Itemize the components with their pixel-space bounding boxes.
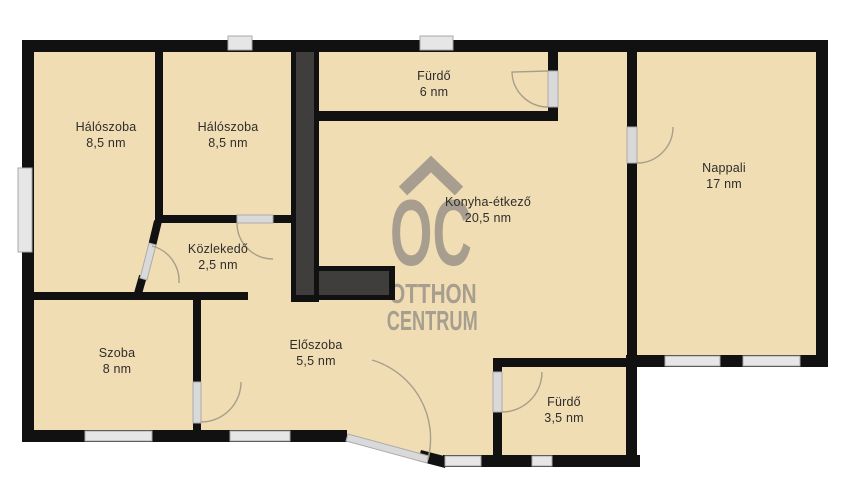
door-leaf-furdo1 xyxy=(548,71,558,107)
watermark-line2: CENTRUM xyxy=(387,306,478,337)
room-name: Hálószoba xyxy=(198,119,259,135)
door-leaf-furdo2 xyxy=(493,372,502,412)
room-area: 6 nm xyxy=(417,84,451,100)
wall-szoba-divider-upper xyxy=(193,300,201,382)
watermark-logo: OC OTTHON CENTRUM xyxy=(387,164,478,337)
room-area: 17 nm xyxy=(702,176,746,192)
room-label-nappali: Nappali 17 nm xyxy=(702,160,746,192)
room-area: 8,5 nm xyxy=(198,135,259,151)
room-area: 2,5 nm xyxy=(188,257,248,273)
room-area: 8,5 nm xyxy=(76,135,137,151)
watermark-line1: OTTHON xyxy=(389,279,476,310)
wall-furdo1-bottom xyxy=(317,111,558,121)
wall-furdo2-left-lower xyxy=(493,412,502,467)
door-leaf-nappali xyxy=(627,127,637,163)
window-bottom-eloszoba xyxy=(230,431,290,441)
wall-nappali-left-lower xyxy=(627,163,637,355)
room-label-furdo-2: Fürdő 3,5 nm xyxy=(544,394,583,426)
window-nappali-bottom-2 xyxy=(743,356,800,366)
room-label-haloszoba-1: Hálószoba 8,5 nm xyxy=(76,119,137,151)
room-area: 8 nm xyxy=(99,361,135,377)
room-label-szoba: Szoba 8 nm xyxy=(99,345,135,377)
room-area: 20,5 nm xyxy=(445,210,531,226)
room-area: 3,5 nm xyxy=(544,410,583,426)
room-name: Fürdő xyxy=(417,68,451,84)
wall-nappali-left-upper xyxy=(627,52,637,127)
shaft-arm-fill xyxy=(319,271,389,295)
door-leaf-szoba xyxy=(193,382,201,423)
shaft-vertical-fill xyxy=(296,52,314,295)
window-left-bedroom1 xyxy=(18,168,32,252)
room-label-eloszoba: Előszoba 5,5 nm xyxy=(289,337,342,369)
window-south-furdo2 xyxy=(532,456,552,466)
room-name: Szoba xyxy=(99,345,135,361)
room-label-haloszoba-2: Hálószoba 8,5 nm xyxy=(198,119,259,151)
room-label-konyha: Konyha-étkező 20,5 nm xyxy=(445,194,531,226)
window-top-furdo1 xyxy=(420,36,453,50)
wall-bedroom-divider xyxy=(155,52,163,223)
room-name: Fürdő xyxy=(544,394,583,410)
wall-right xyxy=(816,40,828,367)
wall-furdo2-right xyxy=(626,355,637,467)
window-top-bedroom2 xyxy=(228,36,252,50)
room-name: Konyha-étkező xyxy=(445,194,531,210)
window-south-eloszoba xyxy=(445,456,481,466)
wall-furdo2-top xyxy=(493,358,627,367)
room-name: Közlekedő xyxy=(188,241,248,257)
room-name: Hálószoba xyxy=(76,119,137,135)
window-bottom-szoba xyxy=(85,431,152,441)
wall-bottom-left xyxy=(22,430,347,442)
wall-szoba-divider-lower xyxy=(193,423,201,431)
room-label-kozlekedo: Közlekedő 2,5 nm xyxy=(188,241,248,273)
room-area: 5,5 nm xyxy=(289,353,342,369)
door-leaf-bedroom2 xyxy=(237,215,273,223)
room-label-furdo-1: Fürdő 6 nm xyxy=(417,68,451,100)
wall-furdo1-right-upper xyxy=(548,52,558,71)
floor-plan-page: OC OTTHON CENTRUM xyxy=(0,0,866,500)
wall-bedroom2-bottom-left xyxy=(155,215,237,223)
window-nappali-bottom-1 xyxy=(665,356,720,366)
wall-furdo1-right-lower xyxy=(548,107,558,121)
room-name: Nappali xyxy=(702,160,746,176)
room-name: Előszoba xyxy=(289,337,342,353)
